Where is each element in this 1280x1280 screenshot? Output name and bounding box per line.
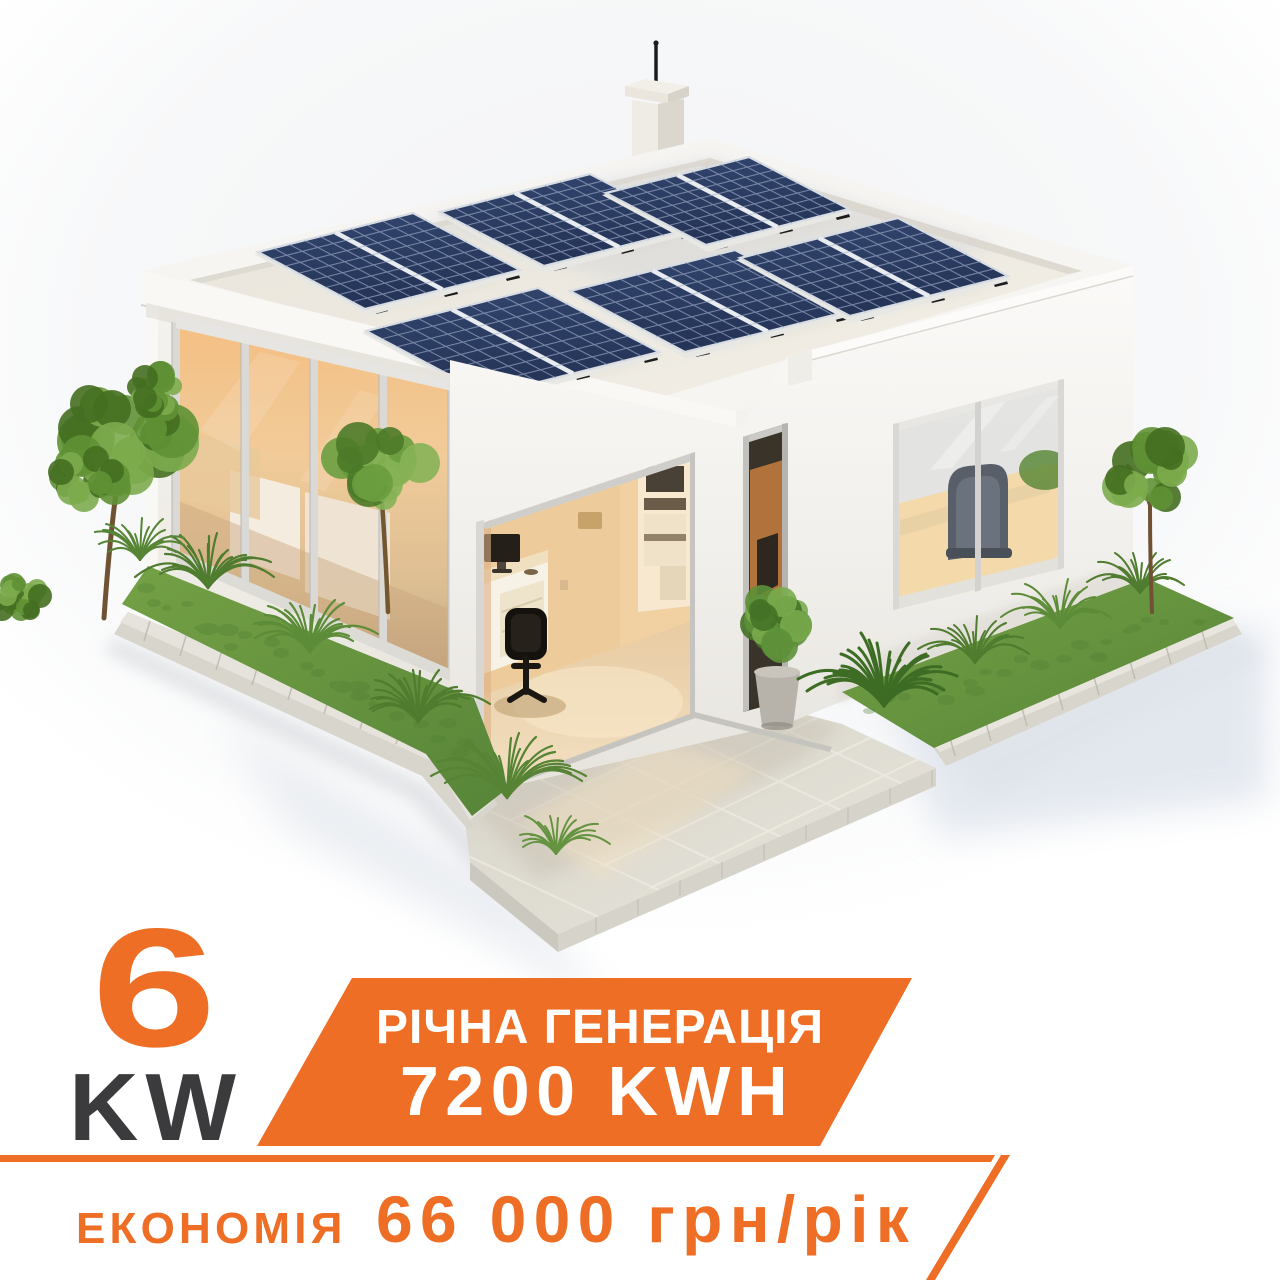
svg-text:7200 KWH: 7200 KWH: [400, 1052, 794, 1130]
svg-text:KW: KW: [69, 1054, 243, 1161]
svg-text:РІЧНА ГЕНЕРАЦІЯ: РІЧНА ГЕНЕРАЦІЯ: [376, 1001, 824, 1054]
svg-text:ЕКОНОМІЯ: ЕКОНОМІЯ: [76, 1204, 347, 1253]
svg-text:66 000 грн/рік: 66 000 грн/рік: [376, 1182, 916, 1256]
